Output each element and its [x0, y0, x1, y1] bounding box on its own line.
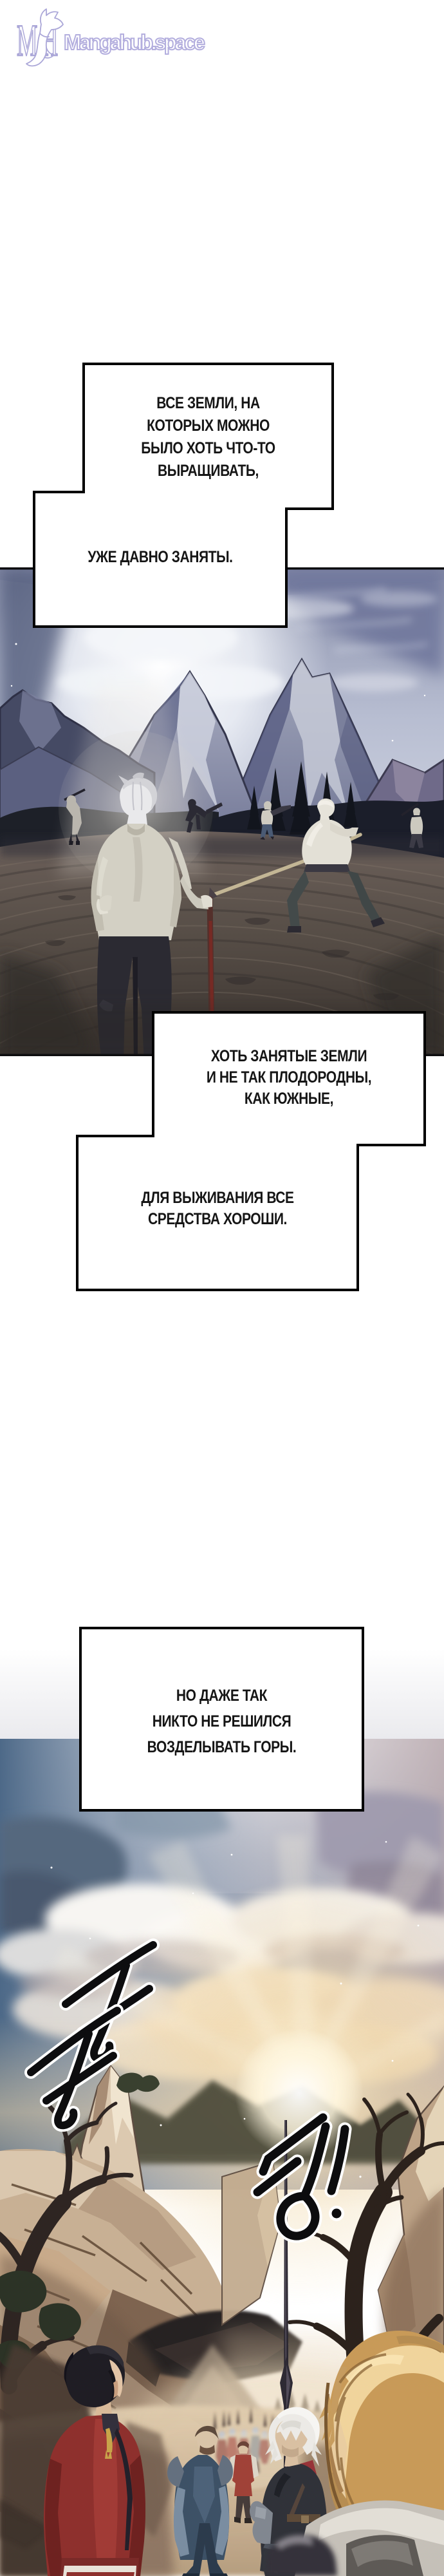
svg-text:Mangahub.space: Mangahub.space [64, 30, 205, 54]
